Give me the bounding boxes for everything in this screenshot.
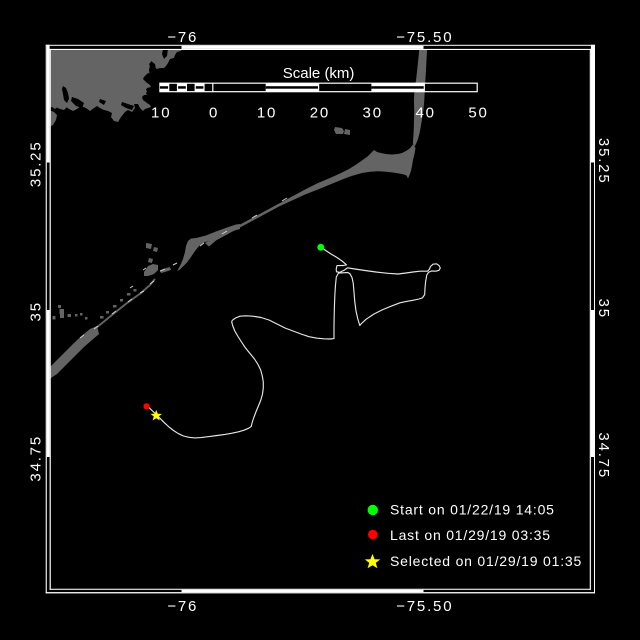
svg-text:10: 10 <box>257 105 277 122</box>
svg-text:35.25: 35.25 <box>28 141 45 188</box>
svg-text:30: 30 <box>363 105 383 122</box>
svg-text:Scale (km): Scale (km) <box>283 65 355 82</box>
svg-text:−75.50: −75.50 <box>396 598 453 615</box>
svg-text:20: 20 <box>310 105 330 122</box>
svg-text:34.75: 34.75 <box>28 435 45 482</box>
svg-text:Start on 01/22/19 14:05: Start on 01/22/19 14:05 <box>390 502 555 518</box>
svg-text:10: 10 <box>151 105 171 122</box>
svg-text:50: 50 <box>468 105 488 122</box>
svg-text:−76: −76 <box>167 29 198 46</box>
svg-text:35: 35 <box>28 301 45 321</box>
svg-text:35: 35 <box>595 299 612 319</box>
svg-text:34.75: 34.75 <box>595 432 612 479</box>
svg-text:−75.50: −75.50 <box>396 29 453 46</box>
svg-text:Selected on 01/29/19 01:35: Selected on 01/29/19 01:35 <box>390 553 582 569</box>
svg-text:−76: −76 <box>167 598 198 615</box>
svg-text:35.25: 35.25 <box>595 138 612 185</box>
svg-text:0: 0 <box>209 105 219 122</box>
svg-text:Last on 01/29/19 03:35: Last on 01/29/19 03:35 <box>390 527 551 543</box>
svg-text:40: 40 <box>415 105 435 122</box>
